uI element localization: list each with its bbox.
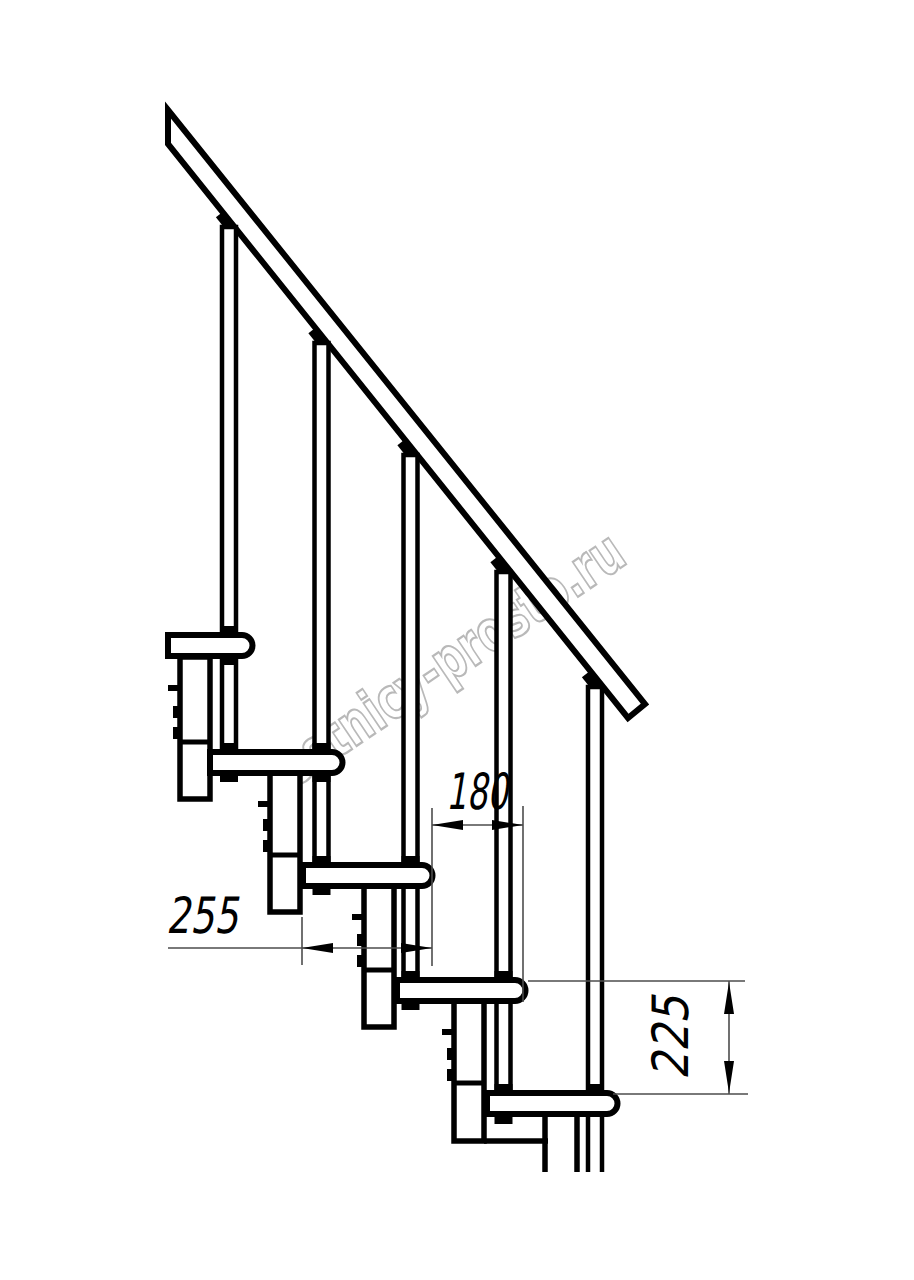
bracket-4 [442, 1029, 454, 1035]
bolt-tab-3a [357, 934, 364, 946]
bolt-tab-2b [263, 840, 270, 852]
bracket-3 [352, 914, 364, 920]
post-under-tread-3 [404, 886, 418, 980]
foot-t4-b4 [495, 971, 513, 980]
bolt-tab-3b [357, 955, 364, 967]
bolt-tab-1a [173, 706, 180, 718]
tread-5 [487, 1093, 618, 1114]
bolt-tab-4a [447, 1048, 454, 1060]
bolt-tab-1b [173, 727, 180, 739]
foot-t5-b5 [586, 1084, 604, 1093]
tread-3 [303, 865, 433, 886]
post-under-tread-2 [315, 773, 329, 865]
nut-t5 [495, 1116, 513, 1124]
dimension-rise-value: 225 [642, 994, 700, 1080]
dimension-going-value: 180 [446, 763, 511, 821]
foot-t2-b2 [313, 743, 331, 752]
foot-t3-p2 [313, 856, 331, 865]
bolt-tab-2a [263, 819, 270, 831]
column-module-1 [180, 657, 210, 799]
foot-t5-p4 [495, 1084, 513, 1093]
post-under-tread-1 [222, 656, 236, 752]
nut-t2-left [220, 774, 238, 782]
foot-t1-b1 [220, 626, 238, 635]
column-module-4 [454, 1001, 484, 1141]
tread-2 [210, 752, 343, 773]
nut-t4 [402, 1002, 420, 1010]
bracket-2 [258, 801, 270, 807]
nut-t1 [220, 657, 238, 665]
nut-t2-right [313, 774, 331, 782]
column-module-3 [364, 886, 394, 1027]
nut-t3 [313, 887, 331, 895]
baluster-2 [315, 343, 329, 752]
foot-t2-p1 [220, 743, 238, 752]
tread-4 [397, 980, 526, 1001]
baluster-3 [404, 455, 418, 865]
staircase-diagram: lestnicy-prosto.ru [0, 0, 914, 1280]
column-module-2 [270, 773, 300, 912]
baluster-5 [588, 687, 602, 1093]
foot-t4-p3 [402, 971, 420, 980]
bracket-1 [168, 685, 180, 691]
drawing-canvas: lestnicy-prosto.ru [0, 0, 914, 1280]
tread-1 [168, 635, 253, 656]
post-under-tread-4 [497, 1001, 511, 1093]
foot-t3-b3 [402, 856, 420, 865]
dimension-tread-depth-value: 255 [166, 887, 240, 945]
baluster-1 [222, 227, 236, 635]
bolt-tab-4b [447, 1069, 454, 1081]
